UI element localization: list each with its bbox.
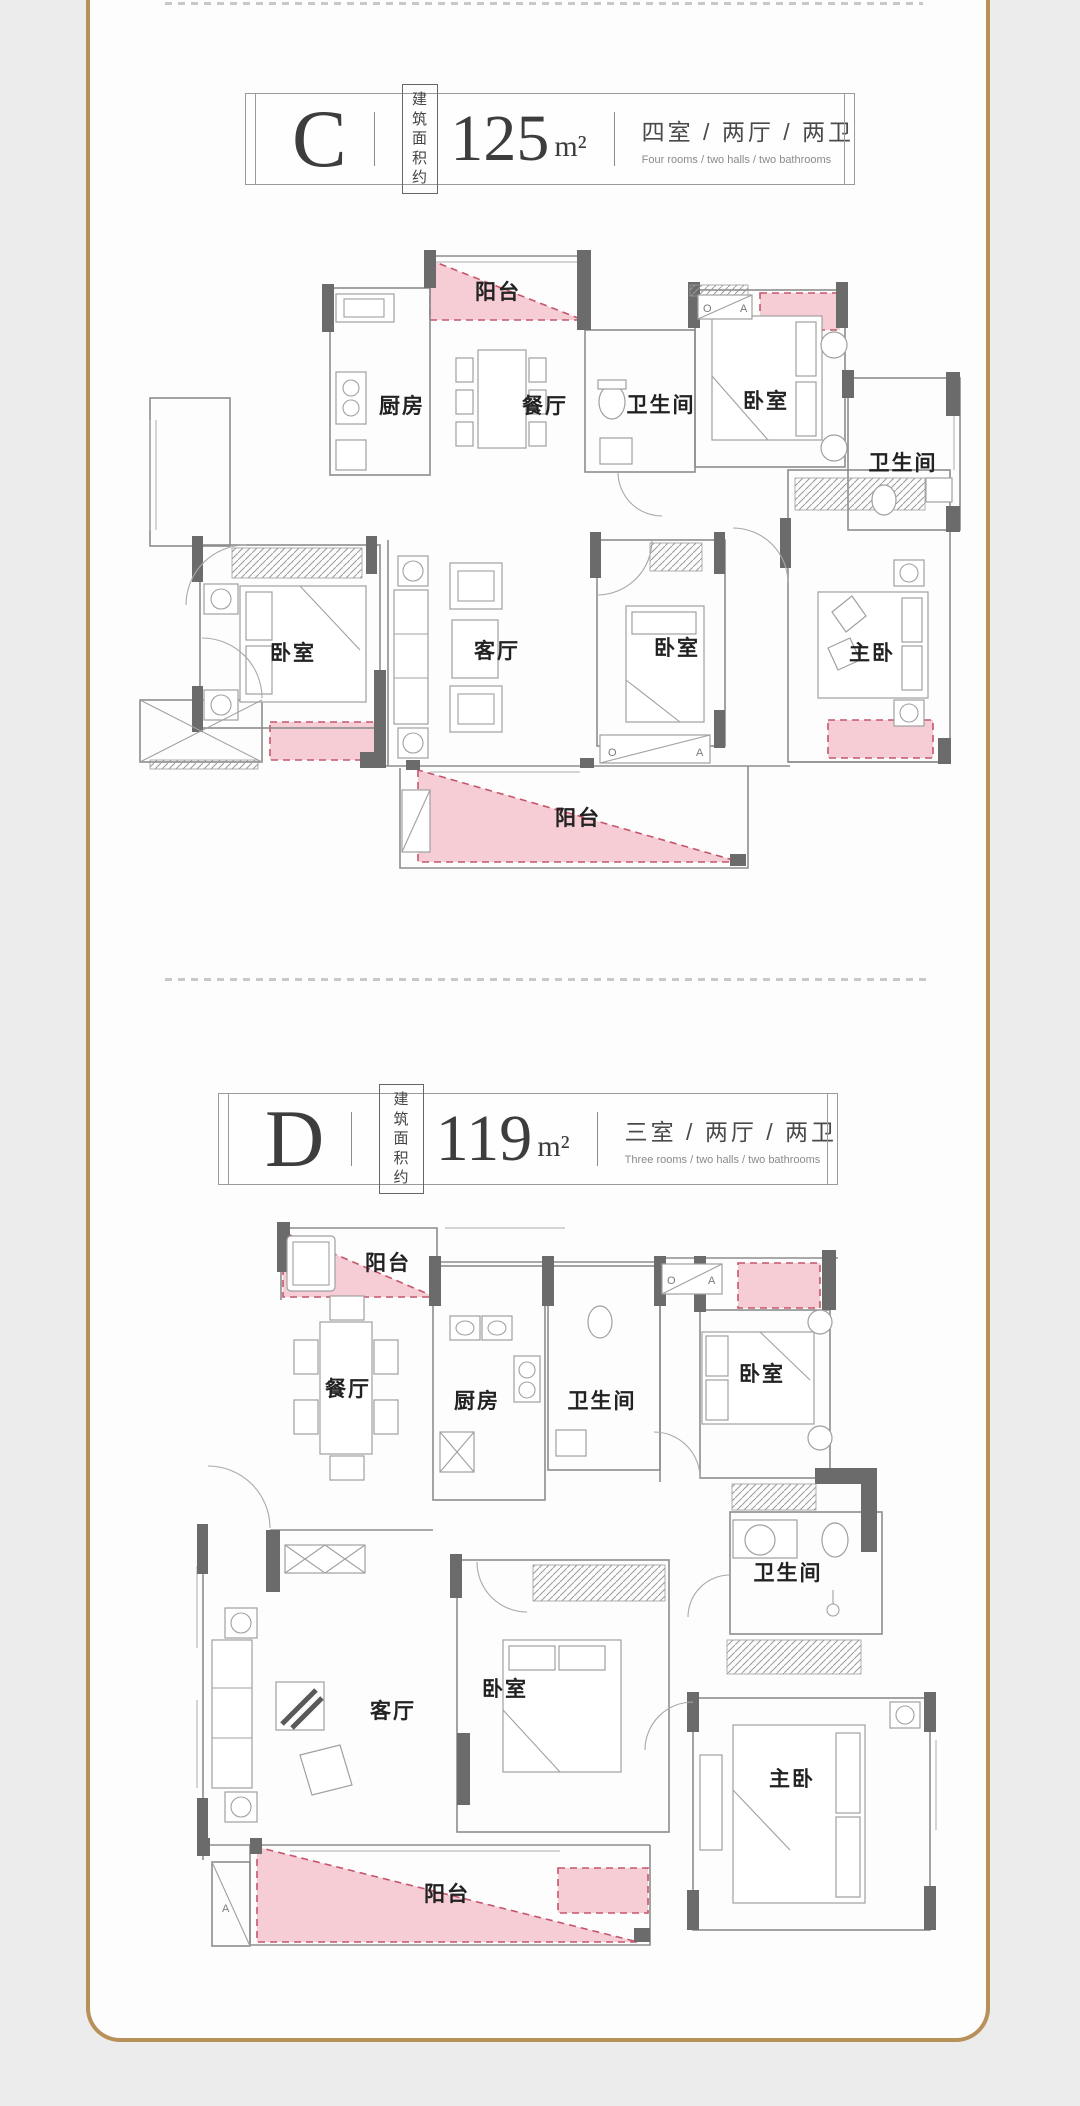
header-divider [597, 1112, 598, 1166]
area-prefix-line2: 面积约 [393, 1130, 409, 1186]
area-prefix-box: 建筑面积约 [402, 84, 439, 194]
room-label-balcony-bottom: 阳台 [424, 1878, 470, 1908]
window-mark-a: A [222, 1903, 230, 1915]
middle-dashed-divider [165, 978, 931, 981]
area-prefix-line1: 建筑 [412, 91, 428, 128]
plan-d-area-unit: m² [537, 1130, 569, 1164]
plan-c-header: C 建筑面积约 125 m² 四室 / 两厅 / 两卫 Four rooms /… [245, 93, 855, 185]
plan-d-area-value: 119 [436, 1106, 533, 1172]
room-label-bedroom-mid: 卧室 [654, 632, 700, 662]
page-background: C 建筑面积约 125 m² 四室 / 两厅 / 两卫 Four rooms /… [0, 0, 1080, 2106]
room-label-balcony-top: 阳台 [475, 276, 521, 306]
plan-c-layout-block: 四室 / 两厅 / 两卫 Four rooms / two halls / tw… [642, 113, 854, 166]
plan-d-header: D 建筑面积约 119 m² 三室 / 两厅 / 两卫 Three rooms … [218, 1093, 838, 1185]
room-label-living: 客厅 [474, 635, 520, 665]
room-label-master: 主卧 [849, 637, 895, 667]
area-prefix-box: 建筑面积约 [379, 1084, 424, 1194]
window-mark-a: A [740, 303, 748, 315]
room-label-bath-1: 卫生间 [627, 389, 696, 419]
room-label-master: 主卧 [769, 1763, 815, 1793]
room-label-kitchen: 厨房 [379, 390, 425, 420]
room-label-bath-1: 卫生间 [568, 1385, 637, 1415]
window-mark-a: A [708, 1275, 716, 1287]
plan-c-area-unit: m² [554, 130, 586, 164]
room-label-bedroom-mid: 卧室 [482, 1673, 528, 1703]
header-divider [614, 112, 615, 166]
plan-c-area-value: 125 [450, 106, 549, 172]
window-mark-o: O [667, 1275, 676, 1287]
room-label-bedroom-top: 卧室 [743, 385, 789, 415]
area-prefix-line2: 面积约 [412, 130, 428, 186]
header-divider [351, 1112, 352, 1166]
room-label-bath-2: 卫生间 [754, 1557, 823, 1587]
room-label-bedroom-left: 卧室 [270, 637, 316, 667]
window-mark-a: A [696, 747, 704, 759]
room-label-living: 客厅 [370, 1695, 416, 1725]
plan-c-floorplan: O A O A [130, 195, 970, 885]
room-label-balcony-top: 阳台 [365, 1247, 411, 1277]
plan-d-layout-en: Three rooms / two halls / two bathrooms [625, 1154, 837, 1166]
room-label-dining: 餐厅 [522, 390, 568, 420]
plan-c-layout-cn: 四室 / 两厅 / 两卫 [642, 113, 854, 147]
room-label-kitchen: 厨房 [454, 1385, 500, 1415]
plan-c-layout-en: Four rooms / two halls / two bathrooms [642, 154, 854, 166]
area-prefix-line1: 建筑 [393, 1091, 409, 1128]
room-label-bedroom-top: 卧室 [739, 1358, 785, 1388]
header-inner-edge-left [228, 1094, 229, 1184]
plan-d-floorplan: O A A [140, 1210, 980, 1970]
plan-d-letter: D [265, 1100, 324, 1178]
plan-c-letter: C [292, 100, 347, 178]
window-mark-o: O [703, 303, 712, 315]
top-dashed-divider [165, 2, 923, 5]
header-divider [374, 112, 375, 166]
room-label-dining: 餐厅 [325, 1373, 371, 1403]
window-mark-o: O [608, 747, 617, 759]
plan-d-layout-block: 三室 / 两厅 / 两卫 Three rooms / two halls / t… [625, 1113, 837, 1166]
header-inner-edge-right [827, 1094, 828, 1184]
header-inner-edge-left [255, 94, 256, 184]
room-label-balcony-bottom: 阳台 [555, 802, 601, 832]
room-label-bath-2: 卫生间 [869, 447, 938, 477]
plan-d-layout-cn: 三室 / 两厅 / 两卫 [625, 1113, 837, 1147]
header-inner-edge-right [844, 94, 845, 184]
